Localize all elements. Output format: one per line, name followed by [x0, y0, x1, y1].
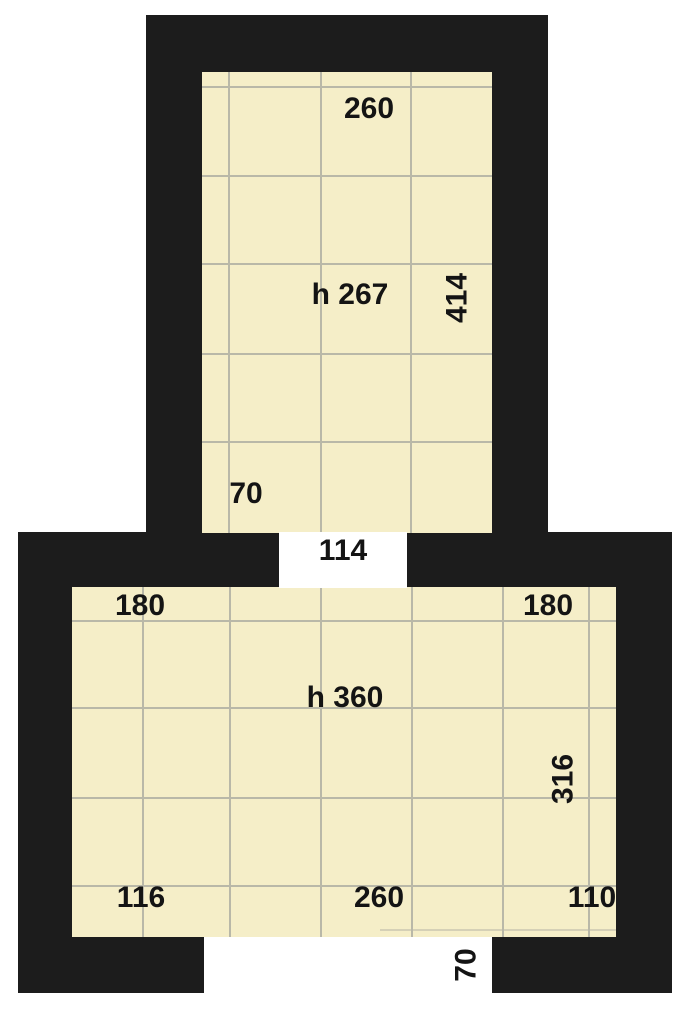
svg-text:260: 260 — [344, 92, 394, 125]
svg-text:180: 180 — [523, 589, 573, 622]
svg-text:414: 414 — [441, 273, 474, 323]
svg-text:180: 180 — [115, 589, 165, 622]
svg-text:70: 70 — [450, 948, 483, 981]
svg-text:110: 110 — [568, 881, 616, 914]
svg-text:h 267: h 267 — [312, 278, 389, 311]
svg-text:h 360: h 360 — [307, 681, 384, 714]
svg-text:260: 260 — [354, 881, 404, 914]
svg-text:70: 70 — [229, 477, 262, 510]
svg-text:316: 316 — [547, 754, 580, 804]
svg-text:114: 114 — [319, 534, 368, 567]
svg-text:116: 116 — [117, 881, 165, 914]
